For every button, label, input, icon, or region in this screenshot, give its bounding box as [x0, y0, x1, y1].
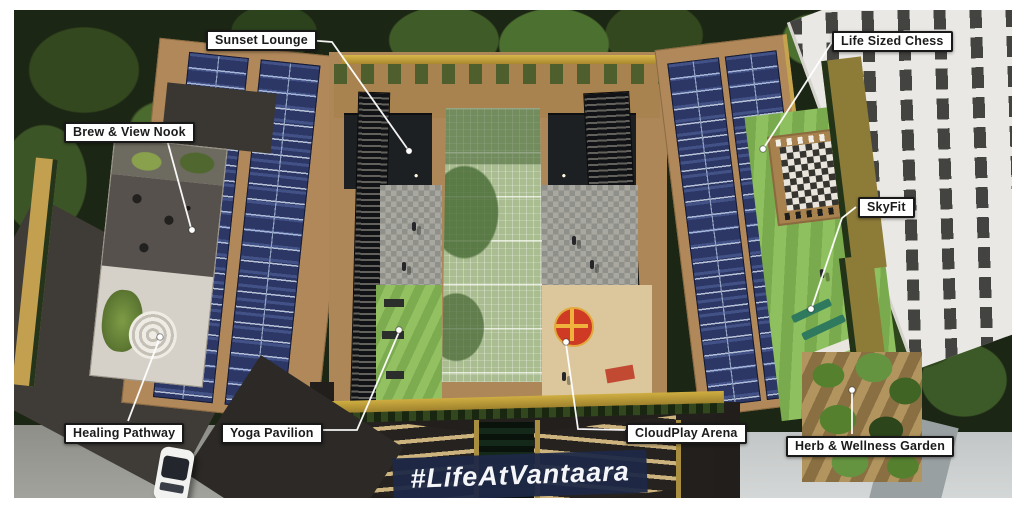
person — [412, 222, 416, 231]
herb-garden-planters — [802, 352, 922, 482]
outdoor-gym-equipment — [386, 371, 404, 379]
callout-healing-pathway: Healing Pathway — [64, 423, 184, 444]
facade-tower — [714, 402, 740, 498]
callout-brew-view-nook: Brew & View Nook — [64, 122, 195, 143]
paved-walkway — [542, 185, 638, 285]
callout-cloudplay-arena: CloudPlay Arena — [626, 423, 747, 444]
sports-net-cage — [442, 108, 544, 382]
skyfit-gym-equipment — [801, 314, 846, 341]
skyfit-gym-equipment — [791, 298, 832, 323]
outdoor-gym-equipment — [382, 331, 404, 339]
hashtag-banner: #LifeAtVantaara — [392, 450, 647, 498]
person — [402, 262, 406, 271]
person — [562, 372, 566, 381]
carousel-ride — [554, 307, 594, 347]
outdoor-gym-equipment — [384, 299, 404, 307]
play-slide — [605, 365, 635, 384]
rooftop-amenities-render: #LifeAtVantaara — [0, 0, 1024, 512]
person — [820, 269, 825, 278]
person — [572, 236, 576, 245]
gold-parapet-beam — [342, 55, 657, 64]
person — [590, 260, 594, 269]
callout-sunset-lounge: Sunset Lounge — [206, 30, 317, 51]
aerial-render-photo: #LifeAtVantaara — [14, 10, 1012, 498]
paved-walkway — [380, 185, 442, 285]
hashtag-text: #LifeAtVantaara — [410, 456, 631, 495]
yoga-lawn — [376, 285, 442, 411]
callout-life-sized-chess: Life Sized Chess — [832, 31, 953, 52]
terrace-cafe-tables — [102, 174, 223, 277]
callout-yoga-pavilion: Yoga Pavilion — [221, 423, 323, 444]
callout-skyfit: SkyFit — [858, 197, 915, 218]
callout-herb-wellness-garden: Herb & Wellness Garden — [786, 436, 954, 457]
